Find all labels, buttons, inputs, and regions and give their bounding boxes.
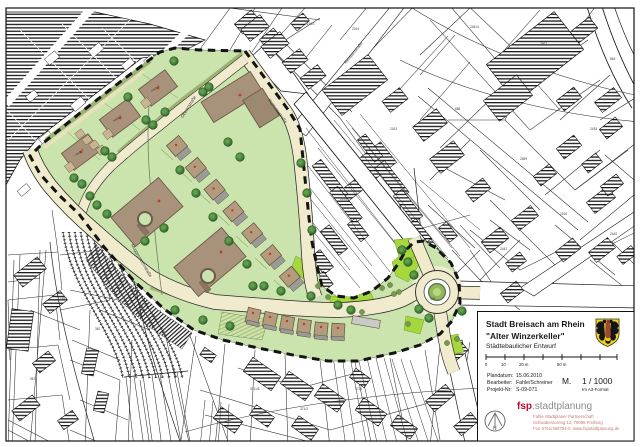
svg-text:2164: 2164: [352, 27, 359, 31]
svg-text:2442: 2442: [500, 247, 507, 251]
svg-text:2862: 2862: [540, 42, 547, 46]
svg-text:2440: 2440: [610, 232, 617, 236]
svg-text:2159: 2159: [340, 197, 347, 201]
svg-text:371/2: 371/2: [300, 407, 308, 411]
svg-text:1 / 1000: 1 / 1000: [582, 376, 613, 386]
svg-text:50 m: 50 m: [557, 362, 567, 367]
svg-text:10: 10: [501, 362, 506, 367]
svg-text:2659: 2659: [520, 157, 527, 161]
svg-text:N: N: [493, 426, 497, 432]
svg-text:"Alter Winzerkeller": "Alter Winzerkeller": [486, 331, 565, 341]
svg-text:Plandatum:: Plandatum:: [487, 373, 513, 379]
svg-text:M.: M.: [562, 376, 571, 386]
svg-text:Stadt Breisach am Rhein: Stadt Breisach am Rhein: [486, 319, 585, 329]
svg-text:2163: 2163: [390, 127, 397, 131]
svg-text:S-09-071: S-09-071: [516, 387, 537, 393]
svg-text:3712: 3712: [355, 387, 362, 391]
svg-text:2169: 2169: [560, 212, 567, 216]
svg-text:Fon 0761/368754-0, www.fspstad: Fon 0761/368754-0, www.fspstadtplanung.d…: [533, 426, 620, 431]
svg-text:379: 379: [430, 297, 436, 301]
svg-text:Städtebaulicher Entwurf: Städtebaulicher Entwurf: [486, 343, 556, 350]
svg-text:3711/6: 3711/6: [250, 387, 260, 391]
svg-text:Fahle Stadtplaner Partnerschaf: Fahle Stadtplaner Partnerschaft: [533, 414, 594, 419]
svg-text:362: 362: [95, 327, 101, 331]
svg-text:Im A3-Format: Im A3-Format: [582, 387, 609, 392]
svg-text:Bearbeiter:: Bearbeiter:: [487, 380, 512, 386]
svg-text:20 m: 20 m: [519, 362, 529, 367]
svg-text:Projekt-Nr:: Projekt-Nr:: [487, 387, 512, 393]
svg-text:24814: 24814: [470, 25, 479, 29]
svg-text:888: 888: [455, 107, 461, 111]
svg-text:1853: 1853: [60, 297, 67, 301]
svg-text:15.06.2010: 15.06.2010: [516, 373, 542, 379]
svg-text:fsp.stadtplanung: fsp.stadtplanung: [517, 401, 592, 412]
svg-text:2438: 2438: [590, 127, 597, 131]
svg-text:Fahle/Schreiner: Fahle/Schreiner: [516, 380, 553, 386]
svg-text:987: 987: [30, 377, 36, 381]
svg-text:863: 863: [610, 57, 616, 61]
svg-text:Schwabentorring 12, 79098 Frei: Schwabentorring 12, 79098 Freiburg: [533, 420, 603, 425]
svg-text:2158/1: 2158/1: [305, 22, 315, 26]
